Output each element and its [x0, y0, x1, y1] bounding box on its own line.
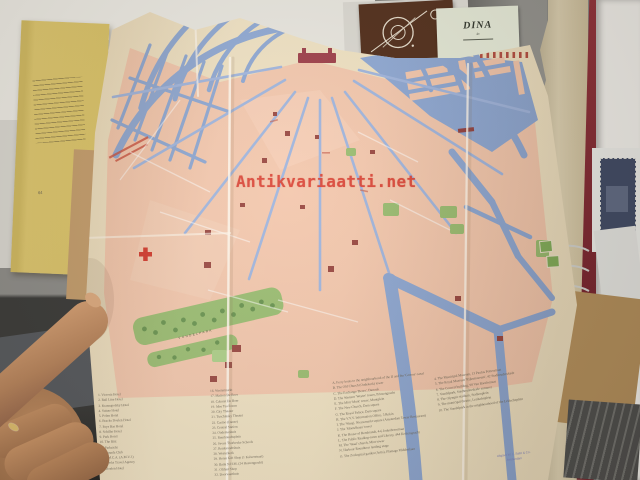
- booklet-text-block: [32, 77, 85, 144]
- dark-photo-stack: [563, 400, 640, 480]
- hand-holding-map: [0, 268, 150, 480]
- navy-print-detail: [606, 186, 628, 212]
- antikvariaatti-watermark: Antikvariaatti.net: [236, 172, 417, 191]
- photo-folded-city-map-scene: 64 DINA in: [0, 0, 640, 480]
- map-legend-column-2: 16. Westermarkt17. Maison De Boer18. Cab…: [210, 383, 333, 479]
- dina-rule: [463, 38, 493, 40]
- white-paper-corner: [594, 226, 640, 305]
- booklet-page-number: 64: [38, 190, 43, 195]
